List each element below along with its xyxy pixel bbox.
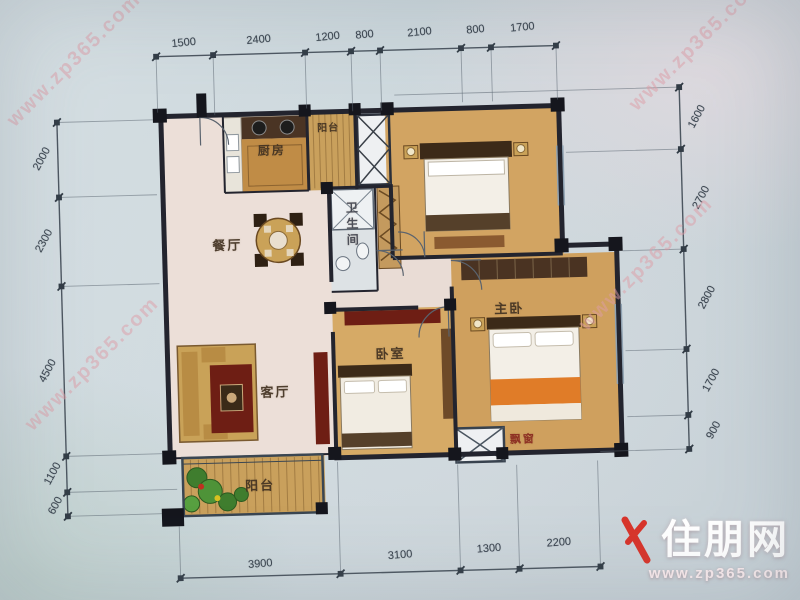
label-dining-room: 餐厅	[212, 234, 243, 254]
label-balcony-bottom: 阳台	[245, 475, 276, 495]
logo-red-mark	[618, 516, 652, 566]
sofa-set	[177, 344, 258, 442]
floorplan-photo: 餐厅 厨房 阳台 卫生间 卧室 主卧 客厅 阳台 飘窗 1500 2400 12…	[0, 0, 800, 600]
label-balcony-top: 阳台	[317, 119, 339, 135]
label-living-room: 客厅	[260, 381, 291, 401]
label-bathroom: 卫生间	[343, 201, 361, 249]
logo-site-name: 住朋网	[661, 518, 790, 562]
dining-table	[254, 213, 304, 267]
floorplan-drawing	[0, 0, 800, 600]
label-kitchen: 厨房	[258, 141, 286, 159]
tv-cabinet	[313, 352, 330, 444]
label-master-bedroom: 主卧	[494, 298, 525, 318]
plan-rotated-layer: 餐厅 厨房 阳台 卫生间 卧室 主卧 客厅 阳台 飘窗 1500 2400 12…	[0, 0, 800, 600]
zp365-logo: 住朋网 www.zp365.com	[612, 518, 792, 594]
logo-site-url: www.zp365.com	[649, 565, 790, 582]
label-bay-window: 飘窗	[510, 430, 536, 447]
label-bedroom: 卧室	[375, 343, 406, 363]
